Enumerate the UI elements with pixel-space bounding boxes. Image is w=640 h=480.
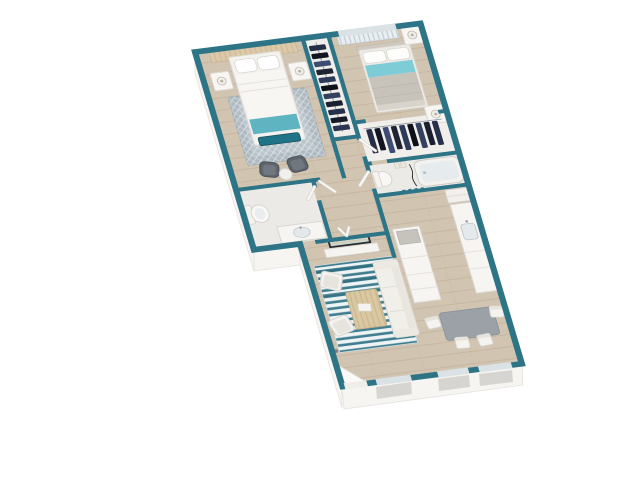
pillow [362,50,387,64]
floor-plan [195,23,522,392]
table-book [358,304,372,311]
island-appliance [396,229,420,244]
window [479,365,512,369]
floor-plan-render [0,0,640,480]
accent-chair-dark [260,161,279,178]
dining-chair [454,337,470,349]
floor-plan-page [0,0,640,480]
pillow [386,47,411,61]
pillow [256,55,280,70]
pillow [234,58,258,73]
window [438,371,469,375]
window [376,378,411,382]
entry-door-opening [345,383,368,386]
